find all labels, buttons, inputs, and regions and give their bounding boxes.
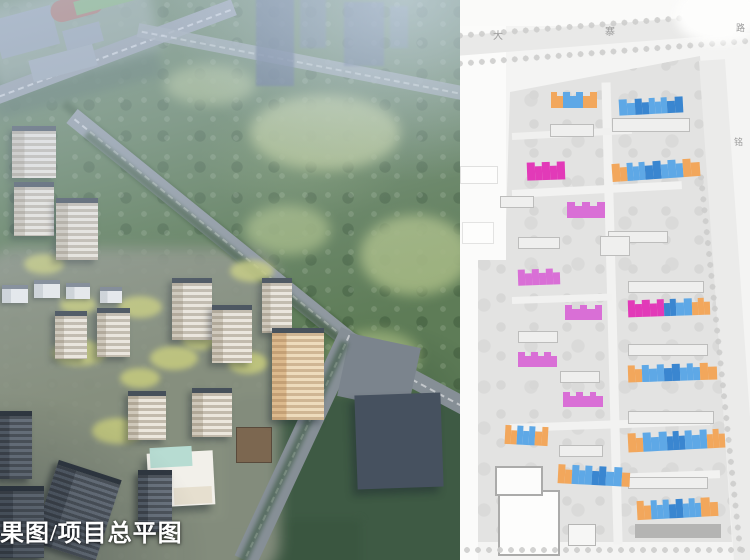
residential-tower bbox=[192, 388, 232, 437]
slate-building bbox=[354, 393, 443, 490]
slide: 果图/项目总平图 大寨路铭 bbox=[0, 0, 750, 560]
hazy-tower bbox=[344, 2, 384, 66]
building-segment bbox=[580, 305, 587, 320]
building-segment bbox=[590, 206, 598, 218]
road-label: 寨 bbox=[605, 28, 615, 38]
building-segment bbox=[576, 92, 583, 108]
building-segment bbox=[565, 305, 572, 320]
caption: 果图/项目总平图 bbox=[0, 513, 183, 548]
hazy-tower bbox=[300, 0, 326, 48]
building-segment bbox=[582, 202, 590, 218]
lawn bbox=[120, 368, 160, 388]
lawn bbox=[150, 346, 198, 370]
offsite-outline bbox=[460, 166, 498, 184]
plan-building bbox=[619, 96, 684, 115]
clearing bbox=[360, 215, 460, 295]
building-segment bbox=[595, 305, 602, 320]
building-segment bbox=[590, 392, 597, 407]
hazy-tower bbox=[256, 0, 294, 86]
residential-tower bbox=[55, 311, 87, 359]
road-label: 大 bbox=[493, 32, 503, 42]
building-outline bbox=[628, 411, 714, 424]
low-rise bbox=[66, 283, 90, 299]
building-segment bbox=[557, 161, 565, 179]
offsite-outline bbox=[462, 222, 494, 244]
building-segment bbox=[597, 202, 605, 218]
residential-tower bbox=[97, 308, 130, 357]
commercial-building bbox=[568, 524, 596, 546]
building-segment bbox=[675, 96, 684, 112]
building-outline bbox=[500, 196, 534, 208]
commercial-building bbox=[495, 466, 543, 496]
residential-tower bbox=[212, 305, 252, 363]
building-segment bbox=[563, 392, 570, 407]
building-outline bbox=[518, 237, 560, 249]
building-outline bbox=[628, 477, 708, 489]
residential-tower bbox=[0, 411, 32, 479]
plan-building bbox=[518, 268, 561, 285]
building-outline bbox=[559, 445, 603, 457]
clearing bbox=[165, 65, 255, 105]
building-segment bbox=[672, 364, 681, 381]
building-outline bbox=[518, 331, 558, 343]
building-segment bbox=[541, 427, 548, 446]
plan-building bbox=[505, 425, 549, 446]
plan-building bbox=[567, 202, 605, 218]
building-segment bbox=[704, 302, 710, 315]
clearing bbox=[250, 95, 400, 170]
building-segment bbox=[551, 356, 558, 367]
building-outline bbox=[560, 371, 600, 383]
building-segment bbox=[575, 206, 583, 218]
plan-building bbox=[563, 392, 603, 407]
gate-pavilion bbox=[236, 427, 272, 463]
plan-building bbox=[628, 298, 710, 318]
building-segment bbox=[553, 272, 560, 284]
site-plan: 大寨路铭 bbox=[460, 0, 750, 560]
parking-strip bbox=[635, 524, 721, 538]
residential-tower bbox=[172, 278, 212, 340]
building-outline bbox=[628, 344, 708, 356]
building-segment bbox=[583, 396, 590, 407]
building-outline bbox=[628, 281, 704, 293]
clearing bbox=[245, 205, 330, 255]
school-glass-roof bbox=[150, 446, 193, 468]
building-segment bbox=[590, 92, 597, 108]
building-segment bbox=[691, 162, 700, 176]
residential-tower bbox=[272, 328, 324, 420]
residential-tower bbox=[56, 198, 98, 260]
plan-building bbox=[518, 352, 557, 367]
road-label: 铭 bbox=[734, 138, 743, 147]
plan-building bbox=[628, 362, 717, 382]
building-segment bbox=[587, 309, 594, 320]
building-outline bbox=[612, 118, 690, 132]
building-segment bbox=[684, 298, 693, 315]
residential-tower bbox=[12, 126, 56, 178]
building-segment bbox=[570, 96, 577, 108]
tree-row bbox=[462, 546, 747, 555]
aerial-render: 果图/项目总平图 bbox=[0, 0, 460, 560]
west-margin bbox=[460, 260, 478, 560]
building-segment bbox=[700, 363, 709, 380]
building-outline bbox=[550, 124, 594, 137]
plan-building bbox=[527, 161, 566, 180]
building-segment bbox=[708, 367, 717, 380]
residential-tower bbox=[128, 391, 166, 440]
building-segment bbox=[596, 396, 603, 407]
school-wing bbox=[174, 486, 213, 505]
residential-tower bbox=[262, 278, 292, 333]
plan-building bbox=[551, 92, 597, 108]
hazy-tower bbox=[390, 6, 408, 48]
low-rise bbox=[2, 285, 28, 303]
building-segment bbox=[572, 309, 579, 320]
building-segment bbox=[576, 392, 583, 407]
low-rise bbox=[34, 280, 60, 298]
plan-building bbox=[558, 464, 631, 487]
building-segment bbox=[709, 501, 718, 516]
building-segment bbox=[583, 96, 590, 108]
low-rise bbox=[100, 287, 122, 303]
building-segment bbox=[719, 433, 726, 448]
building-segment bbox=[567, 202, 575, 218]
building-outline bbox=[600, 236, 630, 256]
residential-tower bbox=[14, 182, 54, 236]
building-segment bbox=[570, 396, 577, 407]
building-segment bbox=[621, 472, 630, 487]
plan-building bbox=[565, 305, 602, 320]
building-segment bbox=[563, 92, 570, 108]
road-label: 路 bbox=[736, 24, 745, 33]
